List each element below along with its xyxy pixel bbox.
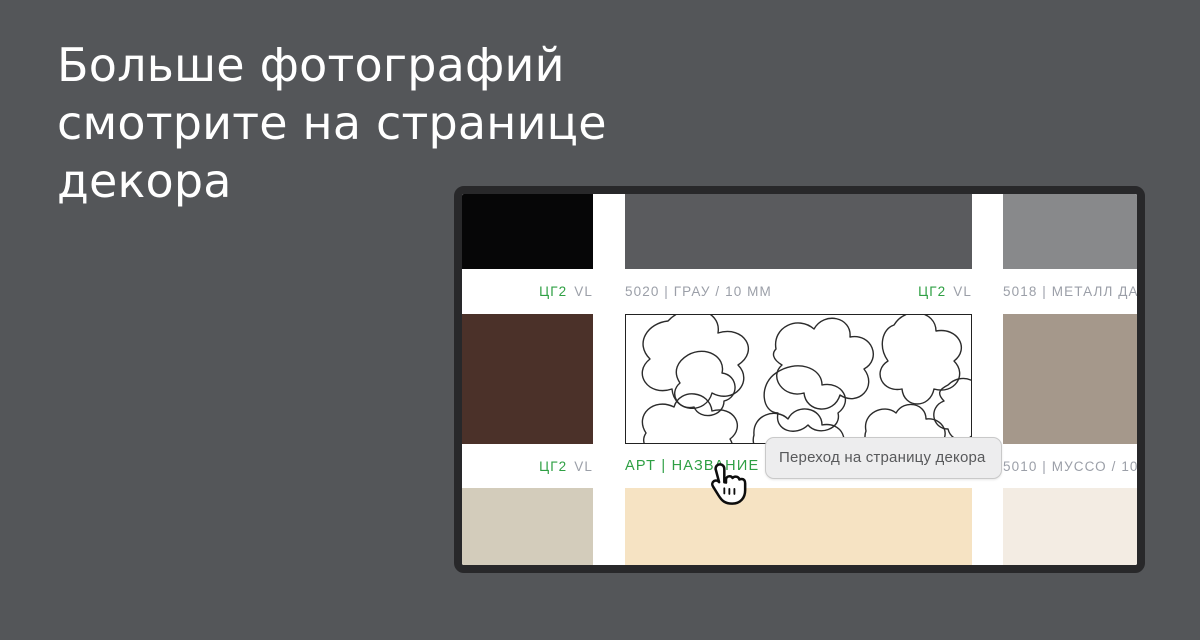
decor-grid: ЦГ2VL 5020 | ГРАУ / 10 ММ ЦГ2VL 5018 | М… [462, 194, 1137, 565]
decor-swatch[interactable] [625, 488, 972, 565]
decor-article-label: 5020 | ГРАУ / 10 ММ [625, 284, 772, 299]
decor-code-green: ЦГ2 [539, 284, 567, 299]
label-band: 5020 | ГРАУ / 10 ММ ЦГ2VL [625, 269, 972, 314]
abstract-line-art-icon [626, 315, 971, 443]
decor-art-pattern-swatch[interactable] [625, 314, 972, 444]
decor-swatch[interactable] [462, 314, 593, 444]
decor-swatch[interactable] [1003, 194, 1137, 269]
decor-code-link[interactable]: ЦГ2VL [918, 284, 972, 299]
label-band: 5018 | МЕТАЛЛ ДАР [1003, 269, 1145, 314]
decor-swatch[interactable] [1003, 488, 1137, 565]
decor-screenshot-frame: ЦГ2VL 5020 | ГРАУ / 10 ММ ЦГ2VL 5018 | М… [454, 186, 1145, 573]
label-band: ЦГ2VL [462, 444, 593, 488]
decor-swatch[interactable] [1003, 314, 1137, 444]
page-title: Больше фотографий смотрите на странице д… [57, 36, 607, 210]
decor-swatch[interactable] [625, 194, 972, 269]
decor-code-green: ЦГ2 [918, 284, 946, 299]
page-title-line-2: смотрите на странице [57, 94, 607, 152]
decor-code-green: ЦГ2 [539, 459, 567, 474]
decor-swatch[interactable] [462, 488, 593, 565]
page-title-line-1: Больше фотографий [57, 36, 607, 94]
tooltip: Переход на страницу декора [765, 437, 1002, 479]
label-band: ЦГ2VL [462, 269, 593, 314]
decor-swatch[interactable] [462, 194, 593, 269]
decor-code-link[interactable]: ЦГ2VL [539, 284, 593, 299]
decor-article-label: 5018 | МЕТАЛЛ ДАР [1003, 284, 1145, 299]
page: { "headline": { "lines": ["Больше фотогр… [0, 0, 1200, 640]
hand-cursor-icon [705, 462, 747, 513]
decor-code-suffix: VL [574, 459, 593, 474]
decor-code-suffix: VL [574, 284, 593, 299]
decor-article-label: 5010 | МУССО / 10 М [1003, 459, 1145, 474]
decor-code-suffix: VL [953, 284, 972, 299]
label-band: 5010 | МУССО / 10 М [1003, 444, 1145, 488]
decor-code-link[interactable]: ЦГ2VL [539, 459, 593, 474]
